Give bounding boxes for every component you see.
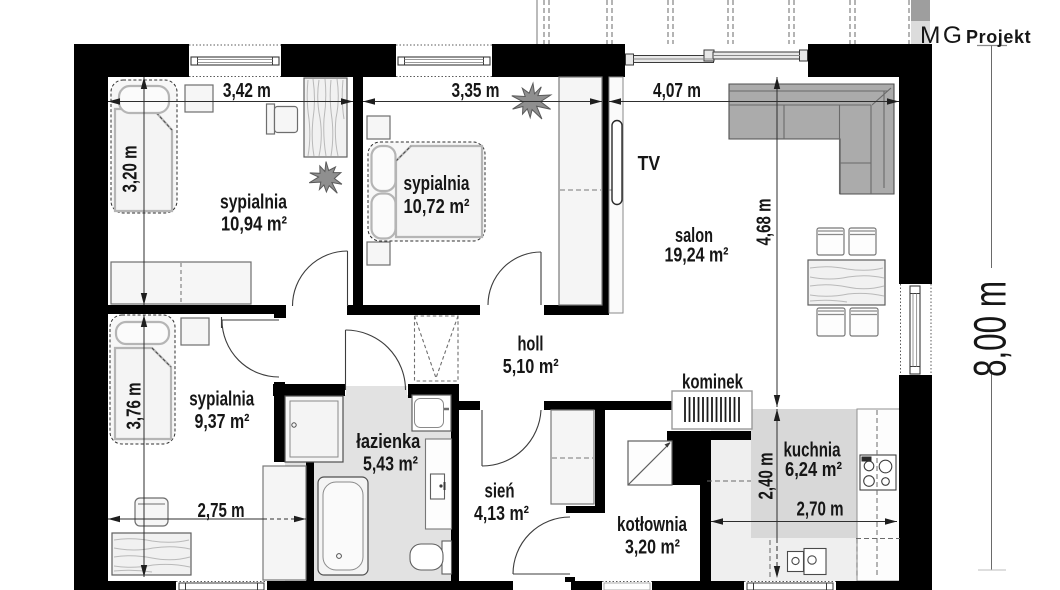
svg-text:19,24 m²: 19,24 m²: [665, 244, 729, 267]
svg-text:TV: TV: [638, 152, 661, 175]
svg-text:3,20 m²: 3,20 m²: [625, 536, 680, 559]
svg-text:3,76 m: 3,76 m: [123, 383, 146, 430]
svg-text:5,10 m²: 5,10 m²: [503, 355, 559, 378]
svg-text:sypialnia: sypialnia: [404, 172, 470, 195]
svg-text:8,00 m: 8,00 m: [965, 281, 1016, 377]
svg-text:4,68 m: 4,68 m: [753, 199, 776, 246]
svg-text:3,42 m: 3,42 m: [223, 79, 271, 102]
svg-text:holl: holl: [518, 332, 544, 355]
svg-text:kominek: kominek: [682, 371, 743, 394]
svg-text:2,70 m: 2,70 m: [797, 497, 844, 520]
svg-text:Projekt: Projekt: [966, 27, 1031, 47]
svg-text:6,24 m²: 6,24 m²: [785, 458, 842, 481]
svg-text:10,72 m²: 10,72 m²: [404, 195, 470, 218]
svg-text:sypialnia: sypialnia: [220, 190, 287, 213]
svg-text:9,37 m²: 9,37 m²: [195, 410, 250, 433]
svg-text:łazienka: łazienka: [356, 430, 420, 453]
svg-text:10,94 m²: 10,94 m²: [221, 213, 287, 236]
svg-text:4,13 m²: 4,13 m²: [474, 502, 529, 525]
svg-text:kotłownia: kotłownia: [617, 513, 687, 536]
svg-text:sypialnia: sypialnia: [189, 387, 254, 410]
svg-text:3,35 m: 3,35 m: [452, 79, 500, 102]
svg-text:MG: MG: [920, 22, 964, 49]
svg-text:5,43 m²: 5,43 m²: [363, 453, 418, 476]
svg-text:3,20 m: 3,20 m: [119, 146, 142, 193]
svg-text:2,40 m: 2,40 m: [755, 453, 778, 500]
svg-text:2,75 m: 2,75 m: [198, 499, 245, 522]
svg-text:4,07 m: 4,07 m: [653, 79, 701, 102]
svg-text:sień: sień: [485, 480, 515, 503]
